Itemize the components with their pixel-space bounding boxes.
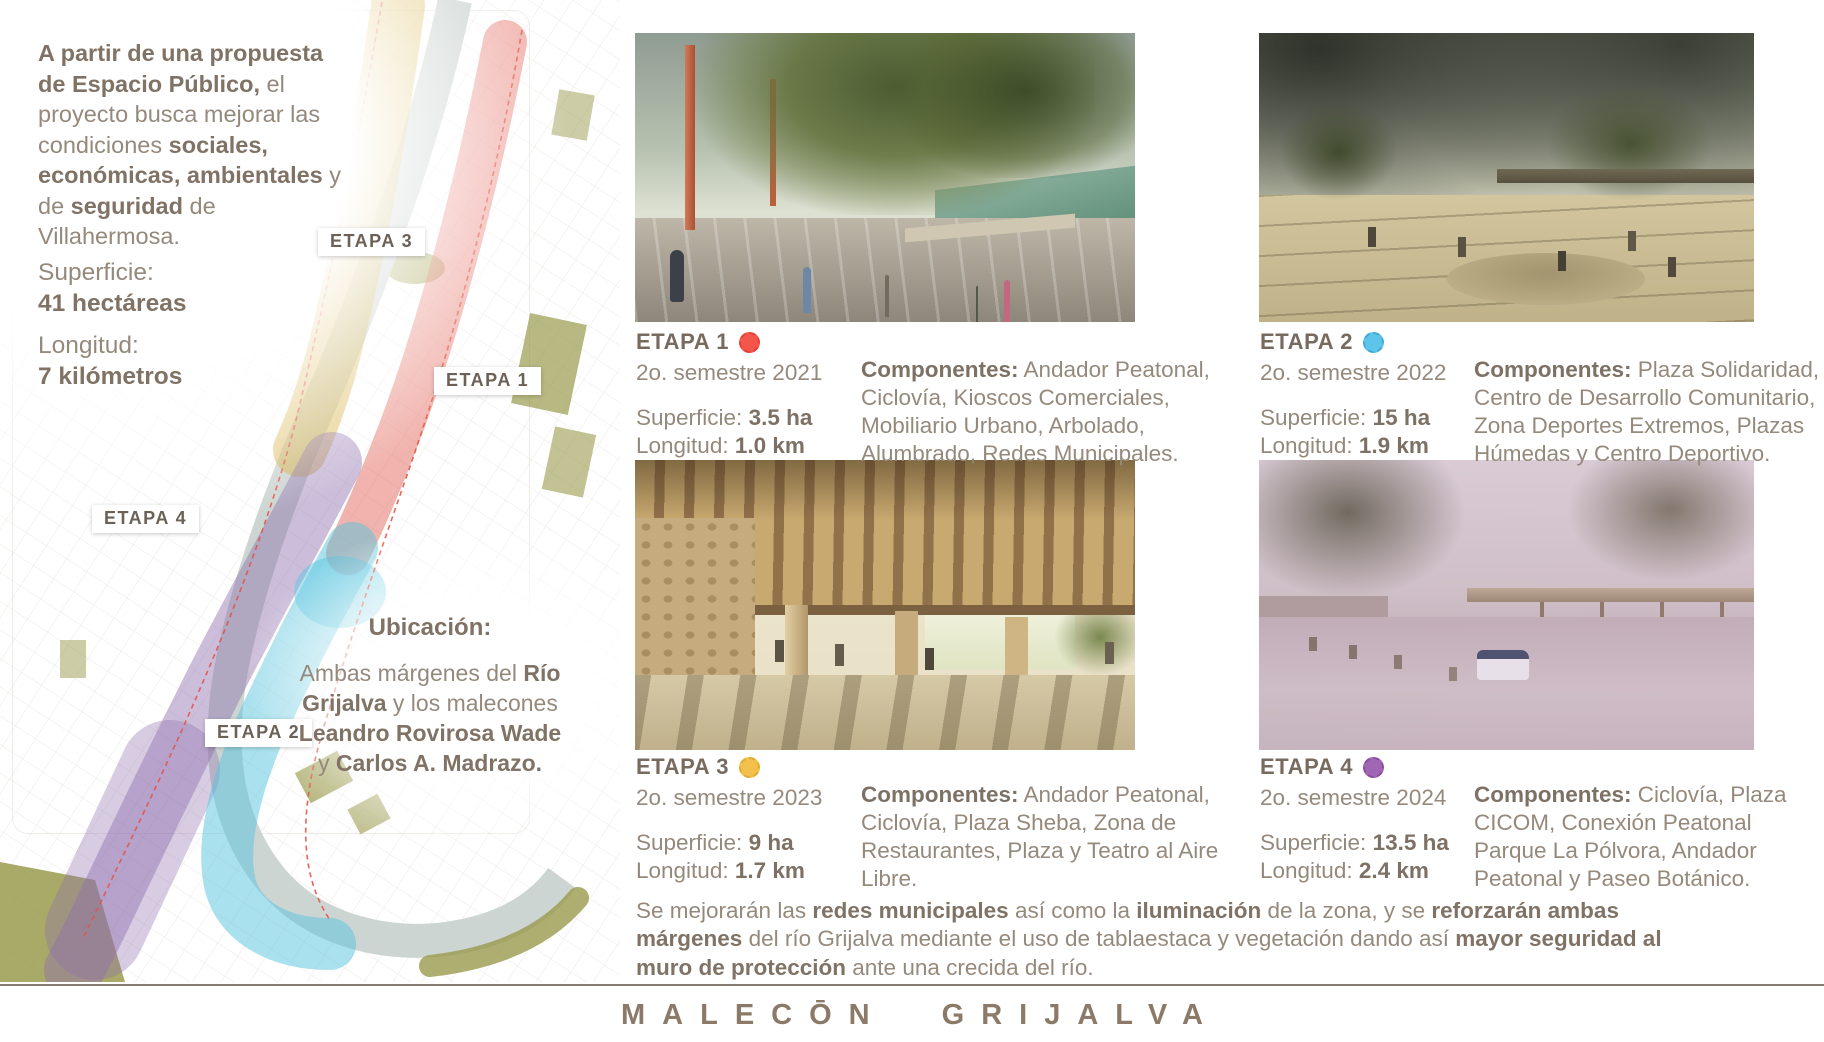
- etapa-4-render-image: [1259, 460, 1754, 750]
- etapa-3-componentes: Componentes: Andador Peatonal, Ciclovía,…: [861, 781, 1229, 893]
- etapa-2-info-block: ETAPA 2 2o. semestre 2022 Superficie: 15…: [1260, 327, 1824, 460]
- componentes-label: Componentes:: [1474, 357, 1632, 382]
- etapa-1-info-block: ETAPA 1 2o. semestre 2021 Superficie: 3.…: [636, 327, 1236, 460]
- note-bold-2: iluminación: [1136, 898, 1261, 923]
- project-title: MALECŌN GRIJALVA: [0, 999, 1824, 1032]
- superficie-value: 13.5 ha: [1373, 830, 1449, 855]
- ubicacion-reg-1: Ambas márgenes del: [300, 660, 524, 686]
- render3-people: [775, 640, 784, 662]
- note-bold-1: redes municipales: [812, 898, 1008, 923]
- etapa-4-color-dot: [1363, 757, 1384, 778]
- superficie-label: Superficie:: [636, 405, 742, 430]
- note-reg-1: Se mejorarán las: [636, 898, 812, 923]
- note-reg-4: del río Grijalva mediante el uso de tabl…: [742, 926, 1455, 951]
- map-label-etapa-1: ETAPA 1: [434, 367, 541, 395]
- etapa-2-componentes: Componentes: Plaza Solidaridad, Centro d…: [1474, 356, 1824, 468]
- render1-tree-canopy-2: [895, 33, 1135, 178]
- etapa-2-color-dot: [1363, 332, 1384, 353]
- render2-pavilion: [1497, 169, 1754, 183]
- etapa-1-title-row: ETAPA 1: [636, 327, 1236, 357]
- etapa-3-title: ETAPA 3: [636, 753, 729, 780]
- ubicacion-bold-2: Leandro Rovirosa Wade: [299, 720, 561, 746]
- intro-paragraph: A partir de una propuesta de Espacio Púb…: [38, 38, 348, 252]
- ubicacion-reg-3: y: [318, 750, 336, 776]
- componentes-label: Componentes:: [861, 782, 1019, 807]
- map-label-etapa-2: ETAPA 2: [205, 719, 312, 747]
- etapa-3-render-image: [635, 460, 1135, 750]
- longitud-value: 1.7 km: [735, 858, 805, 883]
- longitud-label: Longitud:: [636, 858, 729, 883]
- etapa-4-title: ETAPA 4: [1260, 753, 1353, 780]
- superficie-label: Superficie:: [636, 830, 742, 855]
- ubicacion-block: Ubicación: Ambas márgenes del Río Grijal…: [298, 612, 562, 779]
- componentes-label: Componentes:: [861, 357, 1019, 382]
- note-reg-5: ante una crecida del río.: [846, 955, 1094, 980]
- etapa-4-info-block: ETAPA 4 2o. semestre 2024 Superficie: 13…: [1260, 752, 1824, 885]
- etapa-2-title-row: ETAPA 2: [1260, 327, 1824, 357]
- longitud-value: 1.9 km: [1359, 433, 1429, 458]
- render2-people: [1368, 227, 1376, 247]
- superficie-value: 41 hectáreas: [38, 288, 338, 319]
- render1-walkway: [635, 218, 1135, 322]
- ubicacion-reg-2: y los malecones: [387, 690, 558, 716]
- longitud-label: Longitud:: [636, 433, 729, 458]
- etapa-3-color-dot: [739, 757, 760, 778]
- longitud-label: Longitud:: [38, 330, 338, 361]
- superficie-label: Superficie:: [1260, 830, 1366, 855]
- ubicacion-body: Ambas márgenes del Río Grijalva y los ma…: [298, 659, 562, 779]
- note-reg-2: así como la: [1009, 898, 1137, 923]
- etapa-1-title: ETAPA 1: [636, 328, 729, 355]
- etapa-4-title-row: ETAPA 4: [1260, 752, 1824, 782]
- longitud-value: 2.4 km: [1359, 858, 1429, 883]
- superficie-value: 3.5 ha: [749, 405, 813, 430]
- etapa-4-componentes: Componentes: Ciclovía, Plaza CICOM, Cone…: [1474, 781, 1824, 893]
- componentes-label: Componentes:: [1474, 782, 1632, 807]
- longitud-metric: Longitud: 7 kilómetros: [38, 330, 338, 393]
- map-label-etapa-4: ETAPA 4: [92, 505, 199, 533]
- longitud-value: 7 kilómetros: [38, 361, 338, 392]
- etapa-1-color-dot: [739, 332, 760, 353]
- superficie-label: Superficie:: [38, 257, 338, 288]
- etapa-3-info-block: ETAPA 3 2o. semestre 2023 Superficie: 9 …: [636, 752, 1236, 885]
- etapa-1-render-image: [635, 33, 1135, 322]
- etapa-2-title: ETAPA 2: [1260, 328, 1353, 355]
- render3-stone-wall: [635, 518, 755, 698]
- superficie-value: 15 ha: [1373, 405, 1431, 430]
- render2-tree-right: [1546, 85, 1714, 201]
- ubicacion-title: Ubicación:: [298, 612, 562, 643]
- render2-skate-bowl: [1447, 253, 1645, 305]
- etapa-3-title-row: ETAPA 3: [636, 752, 1236, 782]
- etapa-1-componentes: Componentes: Andador Peatonal, Ciclovía,…: [861, 356, 1229, 468]
- note-reg-3: de la zona, y se: [1261, 898, 1431, 923]
- intro-bold-3: seguridad: [71, 193, 183, 219]
- ubicacion-bold-3: Carlos A. Madrazo.: [336, 750, 542, 776]
- render2-tree-left: [1279, 102, 1398, 200]
- footer-divider: [0, 984, 1824, 986]
- render3-opening: [925, 611, 1075, 669]
- longitud-value: 1.0 km: [735, 433, 805, 458]
- improvement-note: Se mejorarán las redes municipales así c…: [636, 897, 1681, 982]
- superficie-metric: Superficie: 41 hectáreas: [38, 257, 338, 320]
- render4-purple-tint: [1259, 460, 1754, 750]
- superficie-value: 9 ha: [749, 830, 794, 855]
- render1-people: [670, 250, 684, 302]
- render3-floor: [635, 675, 1135, 750]
- longitud-label: Longitud:: [1260, 858, 1353, 883]
- superficie-label: Superficie:: [1260, 405, 1366, 430]
- slide-canvas: ETAPA 3 ETAPA 1 ETAPA 4 ETAPA 2 A partir…: [0, 0, 1824, 1042]
- render1-lamp-pole: [685, 45, 695, 230]
- etapa-2-render-image: [1259, 33, 1754, 322]
- longitud-label: Longitud:: [1260, 433, 1353, 458]
